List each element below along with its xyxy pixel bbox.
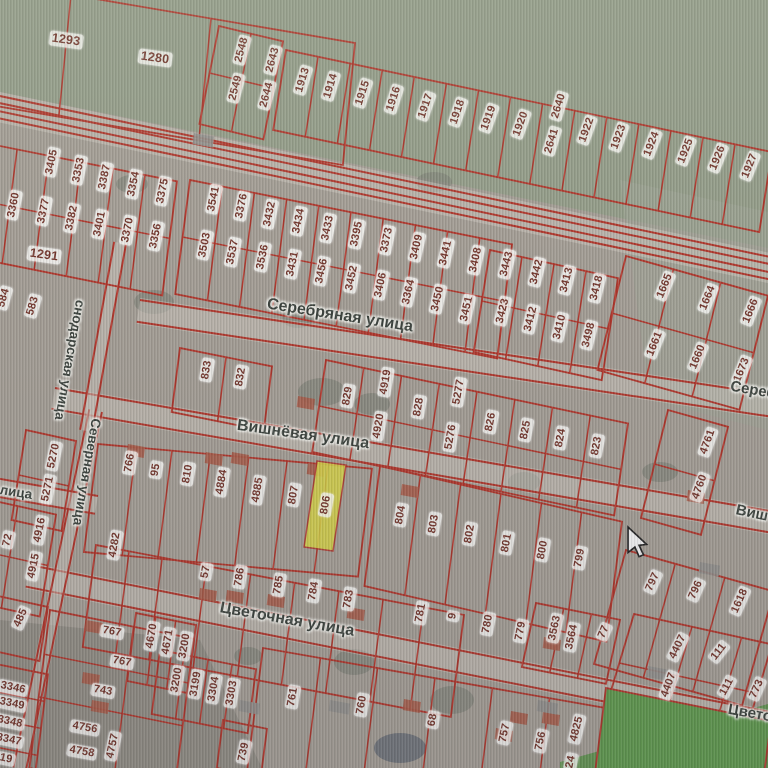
parcel-label: 24: [563, 752, 579, 768]
map-canvas[interactable]: 1293128025482549264326441913191419151916…: [0, 0, 768, 768]
parcel-label: 9: [446, 609, 461, 623]
screen-photo: 1293128025482549264326441913191419151916…: [0, 0, 768, 768]
parcel-label: 19: [0, 751, 16, 767]
